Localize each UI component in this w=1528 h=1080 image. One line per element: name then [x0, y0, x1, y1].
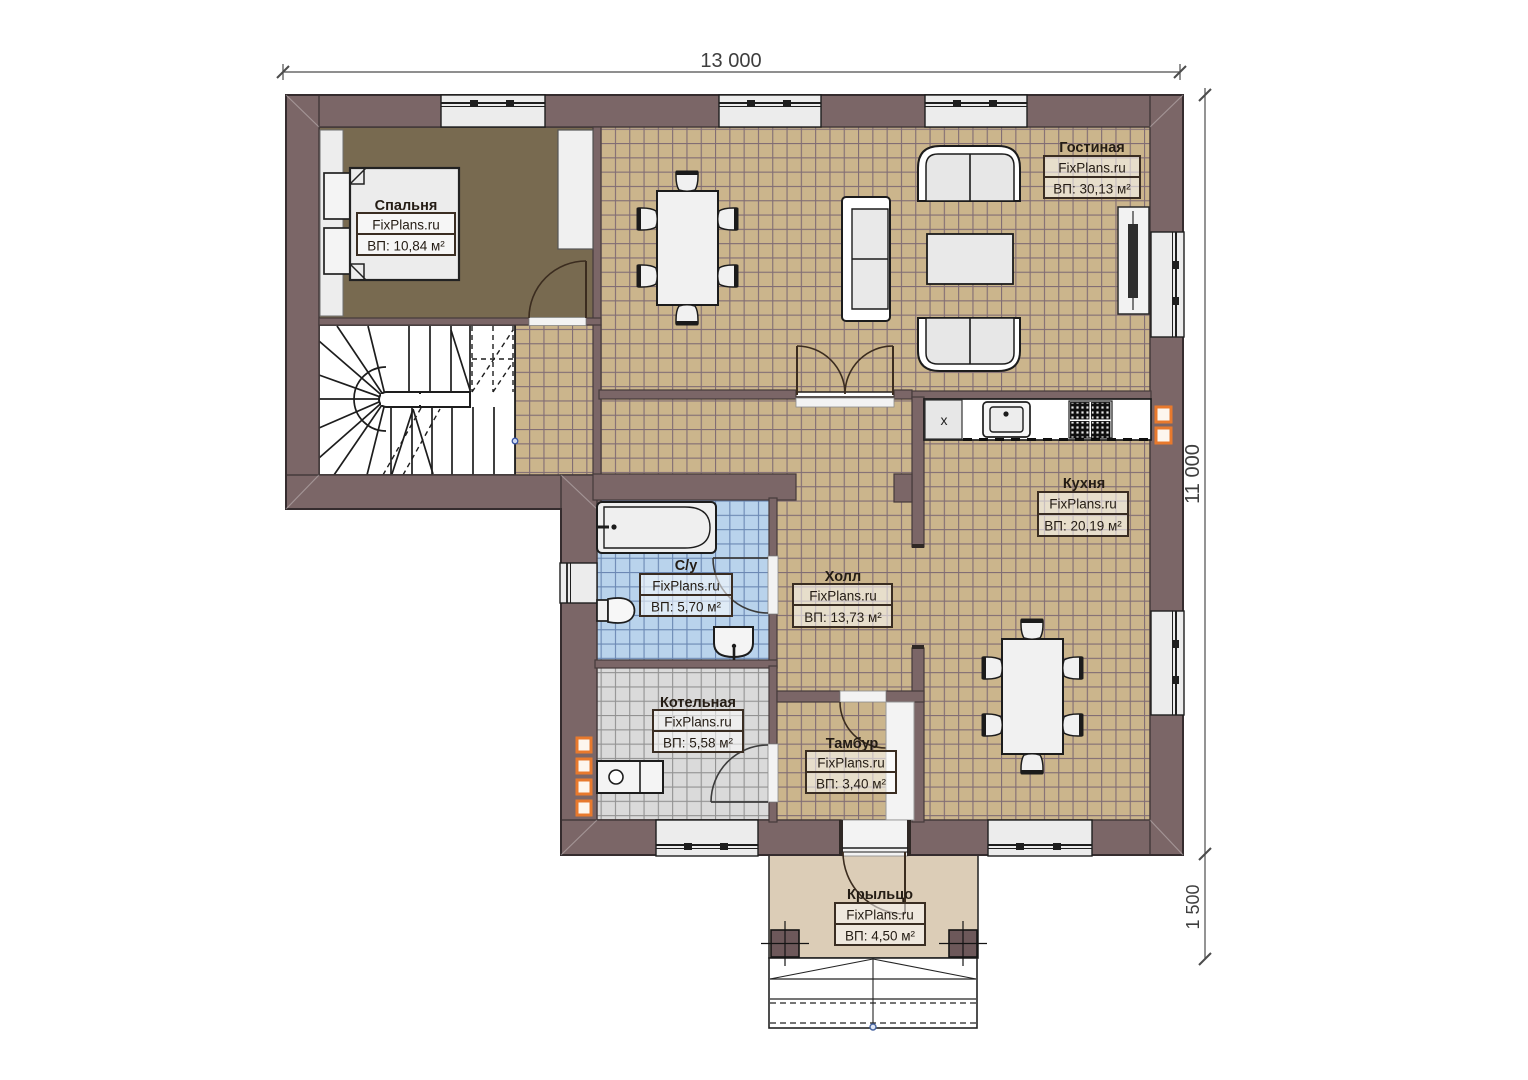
svg-text:ВП: 10,84 м²: ВП: 10,84 м² — [367, 239, 445, 254]
svg-text:FixPlans.ru: FixPlans.ru — [809, 589, 877, 604]
svg-text:ВП: 3,40 м²: ВП: 3,40 м² — [816, 777, 887, 792]
svg-text:С/у: С/у — [675, 558, 698, 574]
svg-text:FixPlans.ru: FixPlans.ru — [817, 756, 885, 771]
svg-text:FixPlans.ru: FixPlans.ru — [1049, 497, 1117, 512]
svg-text:11 000: 11 000 — [1182, 444, 1204, 504]
svg-text:FixPlans.ru: FixPlans.ru — [652, 579, 720, 594]
svg-text:Кухня: Кухня — [1063, 476, 1105, 492]
svg-text:13 000: 13 000 — [700, 50, 761, 72]
svg-text:ВП: 4,50 м²: ВП: 4,50 м² — [845, 929, 916, 944]
svg-text:Гостиная: Гостиная — [1059, 140, 1125, 156]
svg-text:Котельная: Котельная — [660, 695, 736, 711]
svg-text:Тамбур: Тамбур — [826, 736, 879, 752]
svg-text:ВП: 5,70 м²: ВП: 5,70 м² — [651, 600, 722, 615]
svg-text:ВП: 20,19 м²: ВП: 20,19 м² — [1044, 519, 1122, 534]
svg-text:FixPlans.ru: FixPlans.ru — [372, 218, 440, 233]
svg-text:1 500: 1 500 — [1183, 884, 1203, 929]
svg-text:FixPlans.ru: FixPlans.ru — [1058, 161, 1126, 176]
svg-text:ВП: 5,58 м²: ВП: 5,58 м² — [663, 736, 734, 751]
svg-text:ВП: 13,73 м²: ВП: 13,73 м² — [804, 610, 882, 625]
svg-text:ВП: 30,13 м²: ВП: 30,13 м² — [1053, 182, 1131, 197]
svg-text:FixPlans.ru: FixPlans.ru — [664, 715, 732, 730]
svg-text:x: x — [941, 412, 948, 428]
svg-text:Холл: Холл — [825, 569, 861, 585]
svg-text:Крыльцо: Крыльцо — [847, 887, 913, 903]
svg-text:Спальня: Спальня — [375, 198, 438, 214]
svg-text:FixPlans.ru: FixPlans.ru — [846, 908, 914, 923]
